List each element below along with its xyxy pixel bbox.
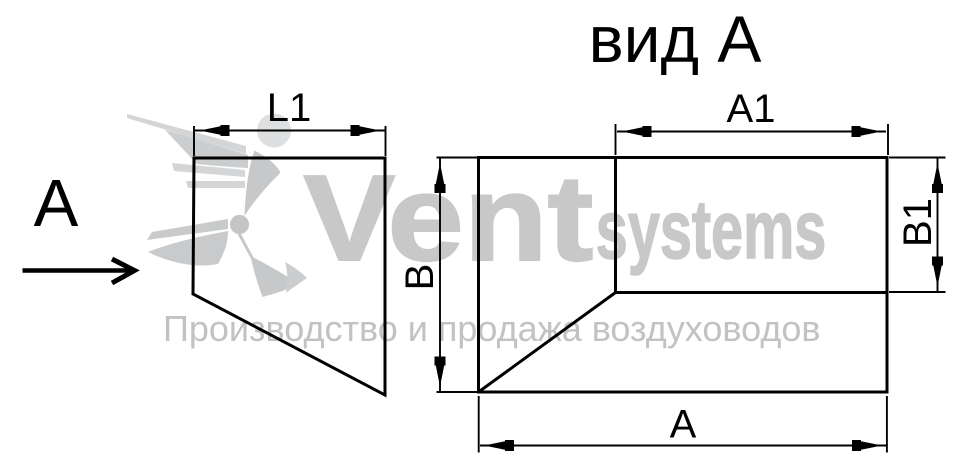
svg-text:вид А: вид А <box>589 2 762 76</box>
svg-text:systems: systems <box>596 184 827 277</box>
svg-text:L1: L1 <box>267 86 312 130</box>
svg-text:B: B <box>398 264 442 291</box>
svg-text:B1: B1 <box>896 198 940 247</box>
svg-text:A1: A1 <box>727 87 776 131</box>
svg-text:Vent: Vent <box>304 149 594 286</box>
svg-text:A: A <box>670 403 697 447</box>
svg-text:A: A <box>34 166 79 241</box>
